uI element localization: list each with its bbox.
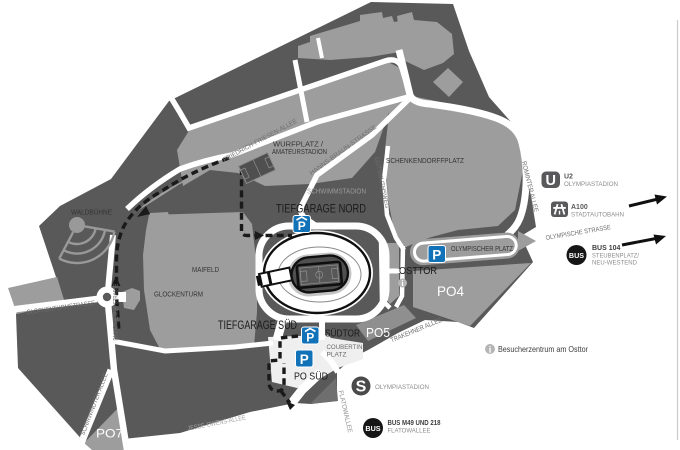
svg-text:COUBERTIN: COUBERTIN [327, 344, 363, 351]
svg-text:BUS M49 UND 218: BUS M49 UND 218 [388, 420, 441, 427]
svg-text:BUS 104: BUS 104 [592, 245, 621, 252]
svg-text:P: P [306, 331, 314, 345]
svg-text:OLYMPIASTADION: OLYMPIASTADION [564, 181, 618, 188]
svg-text:BUS: BUS [569, 251, 584, 260]
svg-text:PO5: PO5 [366, 325, 390, 340]
svg-text:Besucherzentrum am Osttor: Besucherzentrum am Osttor [498, 345, 588, 354]
svg-text:PASSENHEIMER STRASSE: PASSENHEIMER STRASSE [114, 284, 120, 341]
svg-text:OLYMPIASTADION: OLYMPIASTADION [375, 384, 429, 391]
svg-text:P: P [298, 219, 306, 233]
svg-text:P: P [300, 352, 309, 367]
svg-text:P: P [432, 247, 441, 262]
svg-text:PLATZ: PLATZ [327, 352, 347, 359]
svg-text:SÜDTOR: SÜDTOR [325, 328, 360, 340]
svg-text:STADTAUTOBAHN: STADTAUTOBAHN [571, 212, 624, 219]
svg-text:OLYMPISCHER PLATZ: OLYMPISCHER PLATZ [451, 246, 514, 253]
svg-text:U: U [545, 173, 555, 189]
svg-text:SCHENKENDORFFPLATZ: SCHENKENDORFFPLATZ [386, 158, 465, 165]
svg-text:WURFPLATZ /: WURFPLATZ / [273, 142, 323, 149]
svg-text:S: S [356, 379, 367, 396]
svg-text:AMATEURSTADION: AMATEURSTADION [272, 149, 327, 156]
svg-text:U2: U2 [564, 174, 573, 181]
svg-text:A100: A100 [571, 204, 588, 211]
svg-text:GLOCKENTURM: GLOCKENTURM [154, 292, 203, 299]
svg-text:STEUBENPLATZ/: STEUBENPLATZ/ [592, 253, 639, 260]
svg-text:TIEFGARAGE NORD: TIEFGARAGE NORD [276, 204, 366, 216]
svg-text:PO SÜD: PO SÜD [294, 371, 328, 383]
svg-text:MAIFELD: MAIFELD [192, 267, 219, 274]
svg-text:OSTTOR: OSTTOR [399, 265, 437, 277]
svg-text:WALDBÜHNE: WALDBÜHNE [71, 209, 112, 217]
svg-text:BUS: BUS [365, 424, 380, 433]
svg-text:SCHWIMMSTADION: SCHWIMMSTADION [307, 189, 366, 196]
svg-text:TIEFGARAGE SÜD: TIEFGARAGE SÜD [218, 320, 297, 332]
svg-text:PO7: PO7 [96, 427, 123, 441]
svg-text:NEU-WESTEND: NEU-WESTEND [592, 260, 637, 267]
svg-text:PO4: PO4 [437, 284, 464, 299]
svg-text:FLATOWALLEE: FLATOWALLEE [388, 428, 431, 435]
